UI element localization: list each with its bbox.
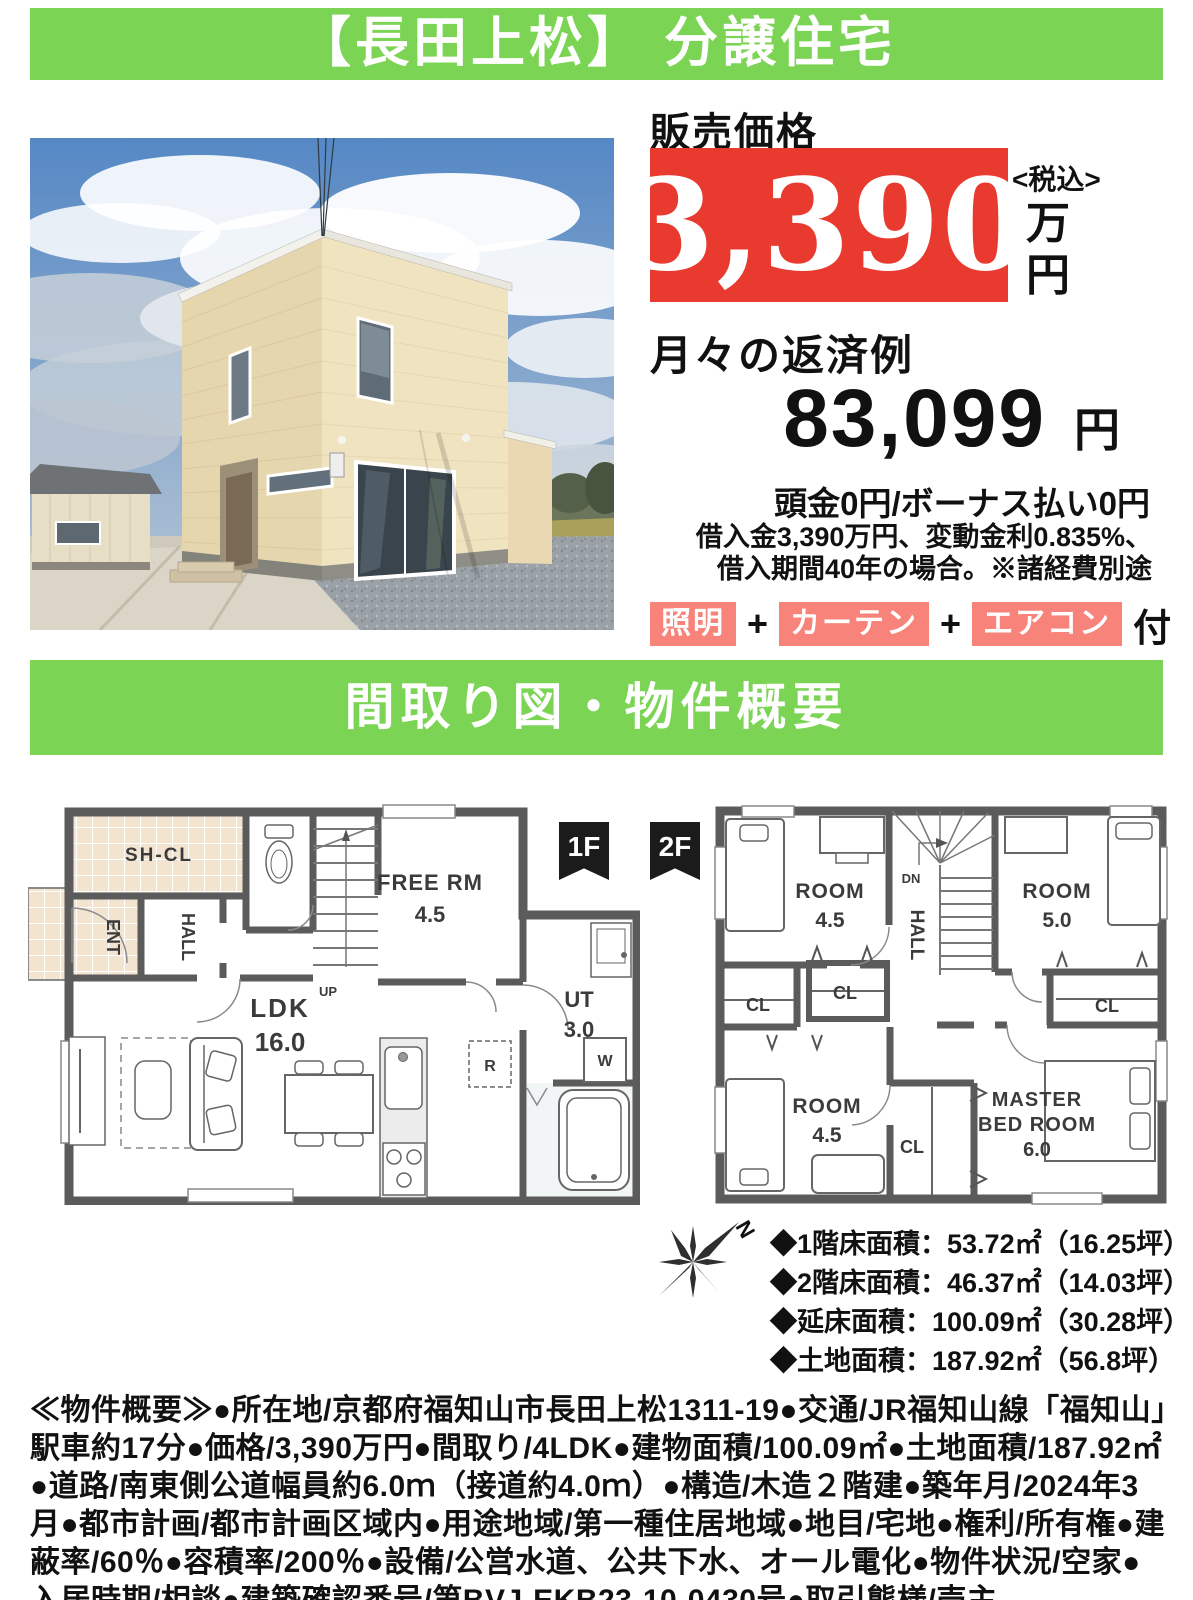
label-up: UP	[319, 984, 337, 999]
area-line-land: ◆土地面積：187.92㎡（56.8坪）	[770, 1342, 1190, 1381]
property-photo-illustration	[30, 138, 614, 630]
plus-sign: +	[940, 603, 961, 645]
label-room-c-size: 4.5	[812, 1124, 842, 1147]
label-ut: UT	[564, 987, 594, 1012]
section-banner: 間取り図・物件概要	[30, 660, 1163, 755]
label-room-b-size: 5.0	[1042, 909, 1071, 932]
tax-included-note: <税込>	[1012, 158, 1162, 198]
label-master-size: 6.0	[1023, 1139, 1051, 1161]
label-cl-3: CL	[1095, 996, 1119, 1016]
top-banner: 【長田上松】 分譲住宅	[30, 8, 1163, 80]
floorplan-1f: SH-CL ENT HALL FREE RM 4.5 LDK 16.0 UT 3…	[28, 795, 640, 1205]
price-unit-yen: 円	[1026, 250, 1162, 302]
price-amount: 3,390	[627, 162, 1032, 288]
price-unit-man: 万	[1026, 198, 1162, 250]
label-room-c: ROOM	[792, 1095, 861, 1118]
equipment-badge-lighting: 照明	[650, 602, 736, 646]
price-box: 3,390	[650, 148, 1008, 302]
label-washer: W	[597, 1053, 613, 1070]
label-cl-1: CL	[746, 995, 770, 1015]
label-room-a: ROOM	[795, 880, 864, 903]
plus-sign: +	[747, 603, 768, 645]
payment-amount-row: 83,099円	[650, 372, 1120, 466]
floor-tag-1f-label: 1F	[568, 831, 601, 862]
area-line-total-floor: ◆延床面積：100.09㎡（30.28坪）	[770, 1303, 1190, 1342]
price-tax-column: <税込> 万 円	[1012, 158, 1162, 302]
label-cl-4: CL	[900, 1137, 924, 1157]
payment-unit: 円	[1074, 404, 1120, 456]
payment-amount: 83,099	[783, 373, 1046, 464]
label-master-1: MASTER	[992, 1089, 1082, 1111]
label-ent: ENT	[103, 919, 123, 955]
equipment-badge-curtain: カーテン	[779, 602, 929, 646]
label-room-a-size: 4.5	[815, 909, 845, 932]
label-room-b: ROOM	[1022, 880, 1091, 903]
entrance-door	[226, 472, 252, 568]
label-ut-size: 3.0	[564, 1017, 595, 1042]
top-banner-title: 【長田上松】 分譲住宅	[297, 13, 896, 73]
label-hall-1f: HALL	[178, 913, 198, 961]
area-line-2f: ◆2階床面積：46.37㎡（14.03坪）	[770, 1264, 1190, 1303]
property-overview-text: ≪物件概要≫●所在地/京都府福知山市長田上松1311-19●交通/JR福知山線「…	[30, 1392, 1168, 1600]
payment-loan-note-2: 借入期間40年の場合。※諸経費別途	[650, 547, 1152, 586]
label-dn: DN	[902, 871, 921, 886]
stairs-1f	[313, 825, 378, 967]
equipment-row: 照明 + カーテン + エアコン 付	[650, 602, 1171, 646]
compass-north-label: N	[731, 1216, 755, 1242]
floor-tag-2f: 2F	[650, 822, 700, 880]
flyer-page: 【長田上松】 分譲住宅	[0, 0, 1193, 1600]
equipment-suffix: 付	[1133, 597, 1171, 652]
label-ldk: LDK	[250, 993, 309, 1023]
label-fridge: R	[484, 1058, 496, 1075]
floorplan-2f: ROOM 4.5 ROOM 5.0 ROOM 4.5 MASTER BED RO…	[712, 795, 1170, 1207]
label-free-rm-size: 4.5	[415, 902, 446, 927]
label-cl-2: CL	[833, 983, 857, 1003]
property-photo	[30, 138, 614, 630]
equipment-badge-aircon: エアコン	[972, 602, 1122, 646]
neighbor-house	[30, 464, 162, 570]
area-line-1f: ◆1階床面積：53.72㎡（16.25坪）	[770, 1225, 1190, 1264]
label-hall-2f: HALL	[906, 910, 927, 961]
label-free-rm: FREE RM	[377, 870, 483, 895]
label-ldk-size: 16.0	[255, 1027, 306, 1057]
compass-icon: N	[645, 1212, 755, 1302]
window-2f-left	[230, 348, 250, 423]
area-list: ◆1階床面積：53.72㎡（16.25坪） ◆2階床面積：46.37㎡（14.0…	[770, 1225, 1190, 1381]
label-master-2: BED ROOM	[978, 1114, 1096, 1136]
label-shcl: SH-CL	[125, 845, 193, 866]
floor-tag-2f-label: 2F	[659, 831, 692, 862]
section-banner-title: 間取り図・物件概要	[345, 679, 849, 735]
main-house	[170, 229, 556, 582]
